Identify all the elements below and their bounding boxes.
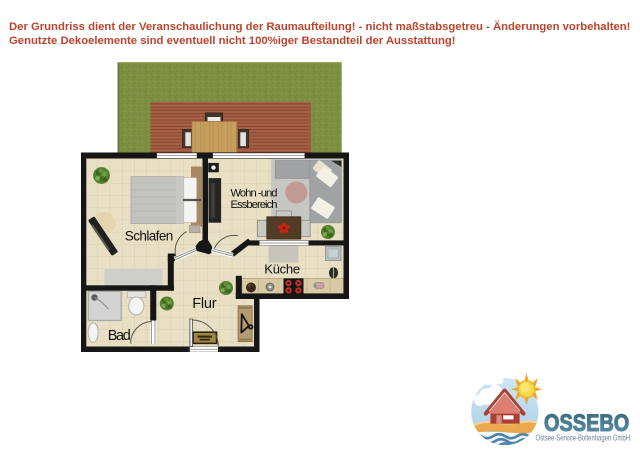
svg-text:Küche: Küche [264,262,300,277]
svg-text:Flur: Flur [192,296,217,312]
svg-text:Essbereich: Essbereich [231,199,278,211]
svg-text:Ostsee-Service-Boltenhagen Gmb: Ostsee-Service-Boltenhagen GmbH [536,433,631,443]
svg-text:Schlafen: Schlafen [125,229,174,244]
svg-text:Bad: Bad [108,328,131,344]
svg-text:Wohn -und: Wohn -und [231,188,278,200]
